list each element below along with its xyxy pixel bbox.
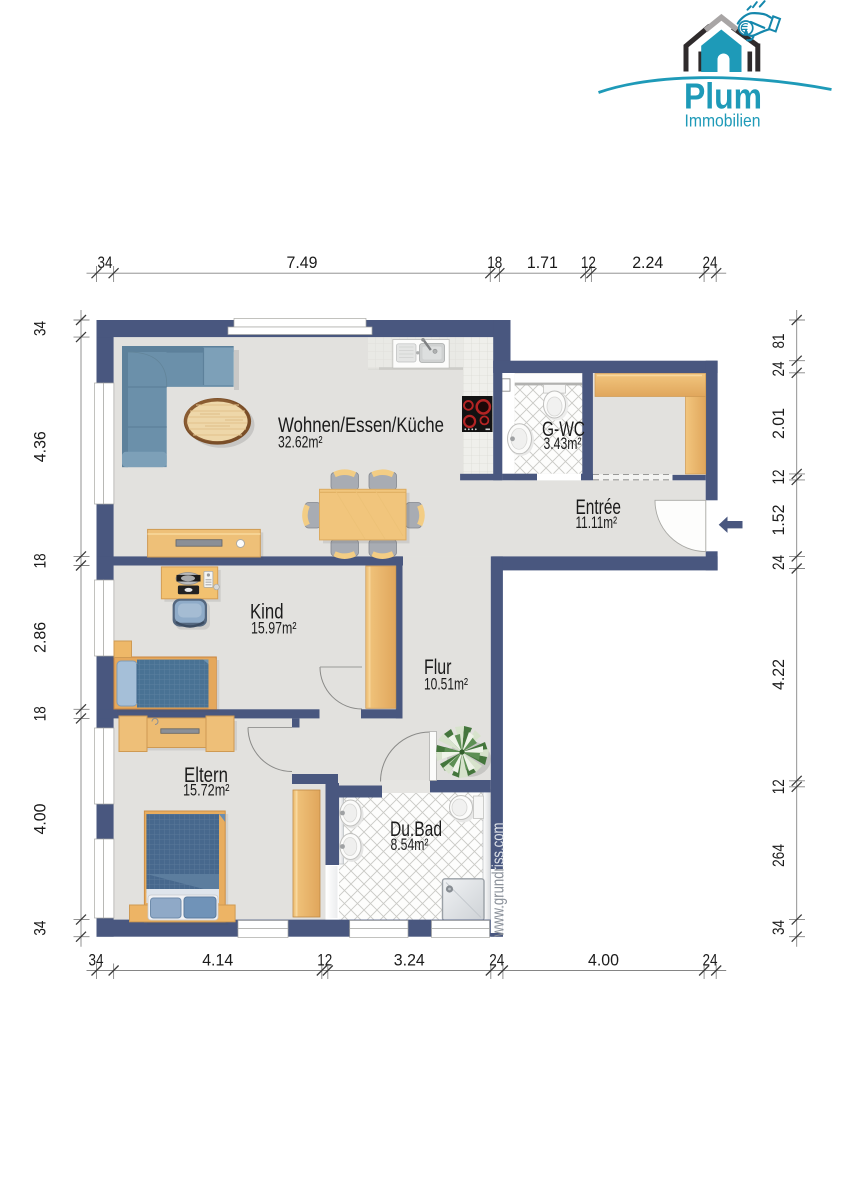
svg-text:264: 264: [770, 844, 788, 867]
svg-text:15.97m²: 15.97m²: [251, 619, 297, 638]
svg-text:3.24: 3.24: [394, 952, 425, 970]
svg-text:2.24: 2.24: [632, 254, 663, 272]
svg-text:4.14: 4.14: [202, 952, 233, 970]
svg-text:1.71: 1.71: [527, 254, 558, 272]
svg-text:4.36: 4.36: [32, 431, 50, 462]
svg-text:1.52: 1.52: [770, 505, 788, 536]
svg-text:34: 34: [98, 254, 113, 272]
svg-text:4.00: 4.00: [32, 804, 50, 835]
svg-text:11.11m²: 11.11m²: [576, 513, 618, 532]
svg-text:24: 24: [489, 952, 504, 970]
svg-text:12: 12: [770, 470, 788, 485]
svg-text:34: 34: [770, 920, 788, 935]
svg-text:10.51m²: 10.51m²: [424, 675, 468, 694]
svg-text:15.72m²: 15.72m²: [183, 781, 230, 800]
svg-text:12: 12: [581, 254, 596, 272]
svg-text:12: 12: [317, 952, 332, 970]
svg-text:4.22: 4.22: [770, 659, 788, 690]
svg-text:2.86: 2.86: [32, 622, 50, 653]
svg-text:24: 24: [770, 362, 788, 377]
svg-text:12: 12: [770, 779, 788, 794]
svg-text:8.54m²: 8.54m²: [391, 835, 429, 854]
svg-text:34: 34: [89, 952, 104, 970]
svg-text:34: 34: [32, 321, 50, 336]
svg-text:18: 18: [32, 706, 50, 721]
svg-text:24: 24: [703, 952, 718, 970]
svg-text:18: 18: [487, 254, 502, 272]
svg-text:24: 24: [770, 555, 788, 570]
svg-text:Immobilien: Immobilien: [685, 111, 761, 131]
svg-text:4.00: 4.00: [588, 952, 619, 970]
svg-text:3.43m²: 3.43m²: [544, 434, 582, 453]
svg-text:34: 34: [32, 921, 50, 936]
svg-text:7.49: 7.49: [287, 254, 318, 272]
svg-text:81: 81: [770, 334, 788, 349]
svg-text:24: 24: [703, 254, 718, 272]
svg-text:18: 18: [32, 553, 50, 568]
svg-text:32.62m²: 32.62m²: [278, 433, 323, 452]
svg-text:2.01: 2.01: [770, 408, 788, 439]
